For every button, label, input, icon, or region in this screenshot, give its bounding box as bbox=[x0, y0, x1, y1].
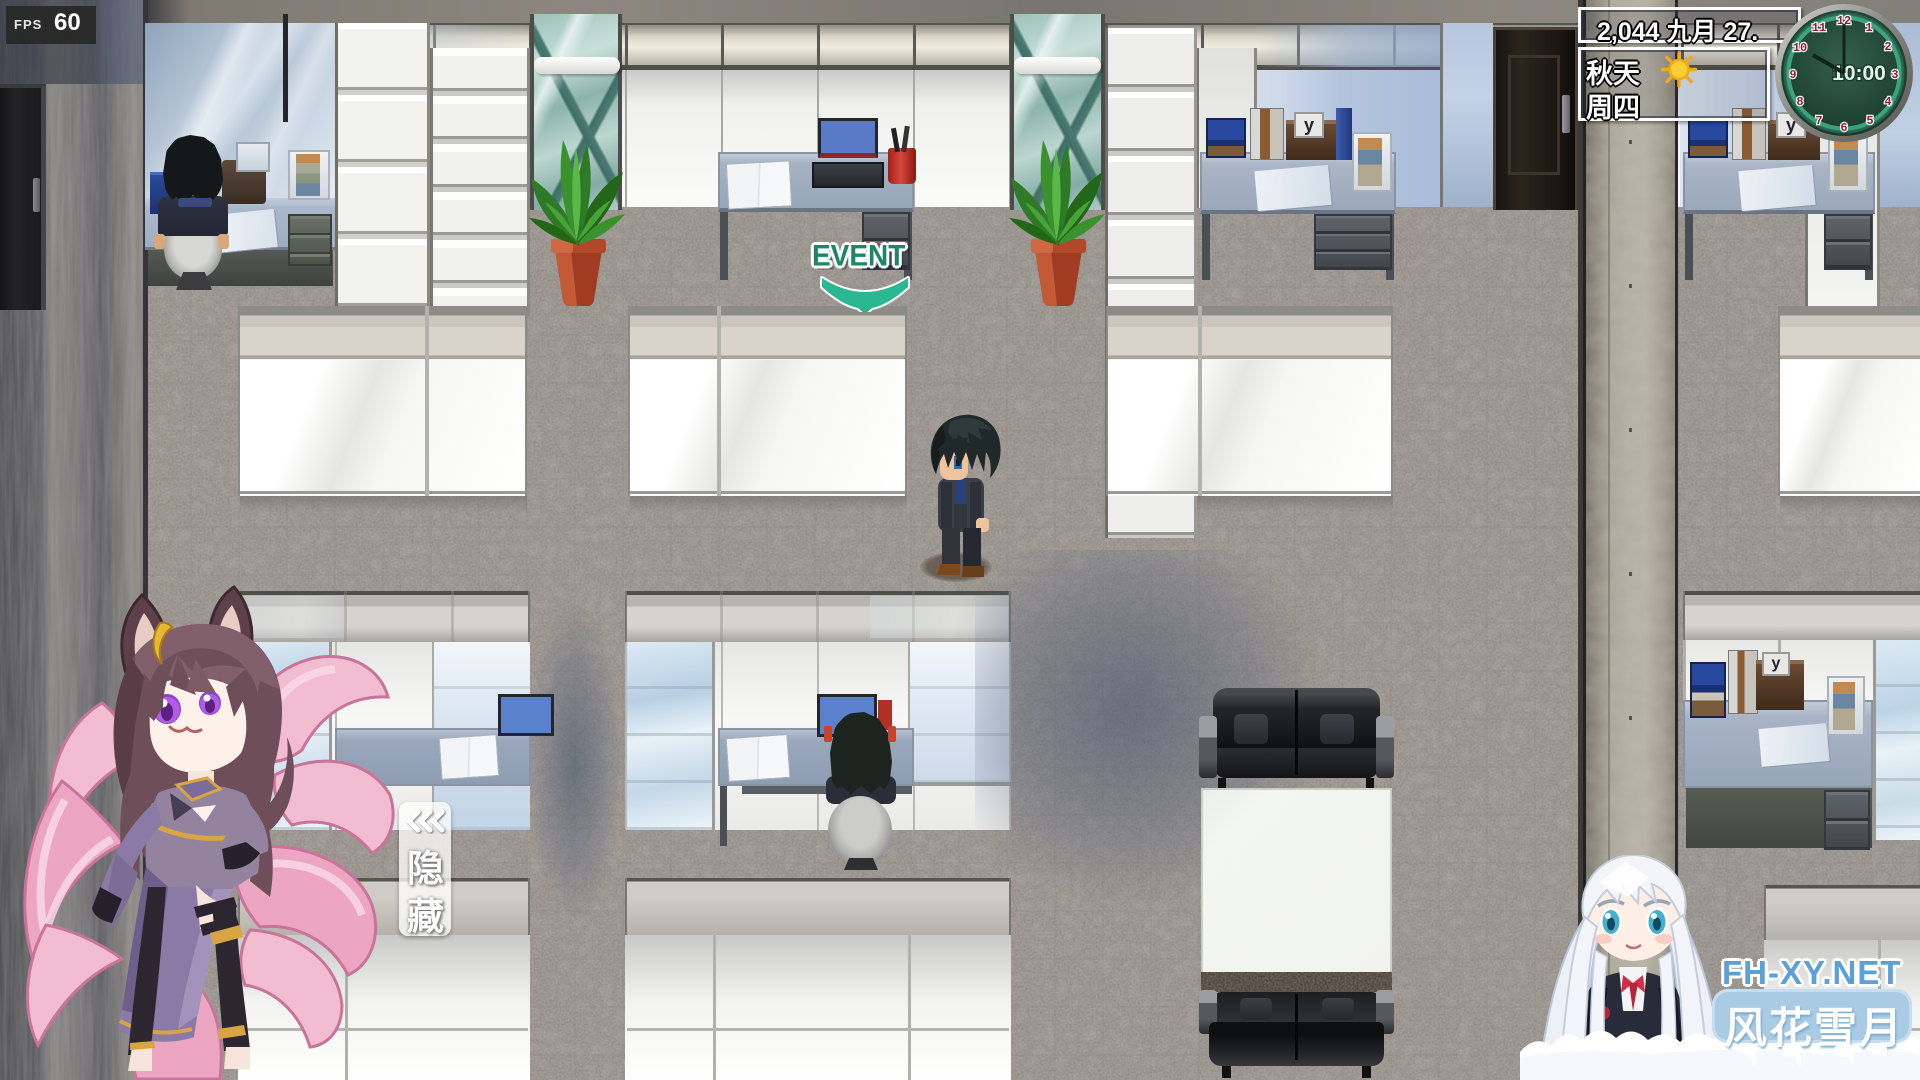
svg-text:1: 1 bbox=[1865, 21, 1872, 35]
svg-text:5: 5 bbox=[1866, 114, 1873, 128]
svg-text:11: 11 bbox=[1812, 21, 1826, 35]
svg-text:2: 2 bbox=[1884, 40, 1891, 54]
svg-text:10:00: 10:00 bbox=[1832, 62, 1886, 85]
svg-text:7: 7 bbox=[1815, 114, 1822, 128]
svg-text:9: 9 bbox=[1789, 68, 1796, 82]
svg-text:10: 10 bbox=[1793, 41, 1807, 55]
svg-text:6: 6 bbox=[1840, 121, 1847, 135]
svg-text:3: 3 bbox=[1891, 68, 1898, 82]
svg-text:8: 8 bbox=[1796, 95, 1803, 109]
svg-text:4: 4 bbox=[1884, 95, 1891, 109]
